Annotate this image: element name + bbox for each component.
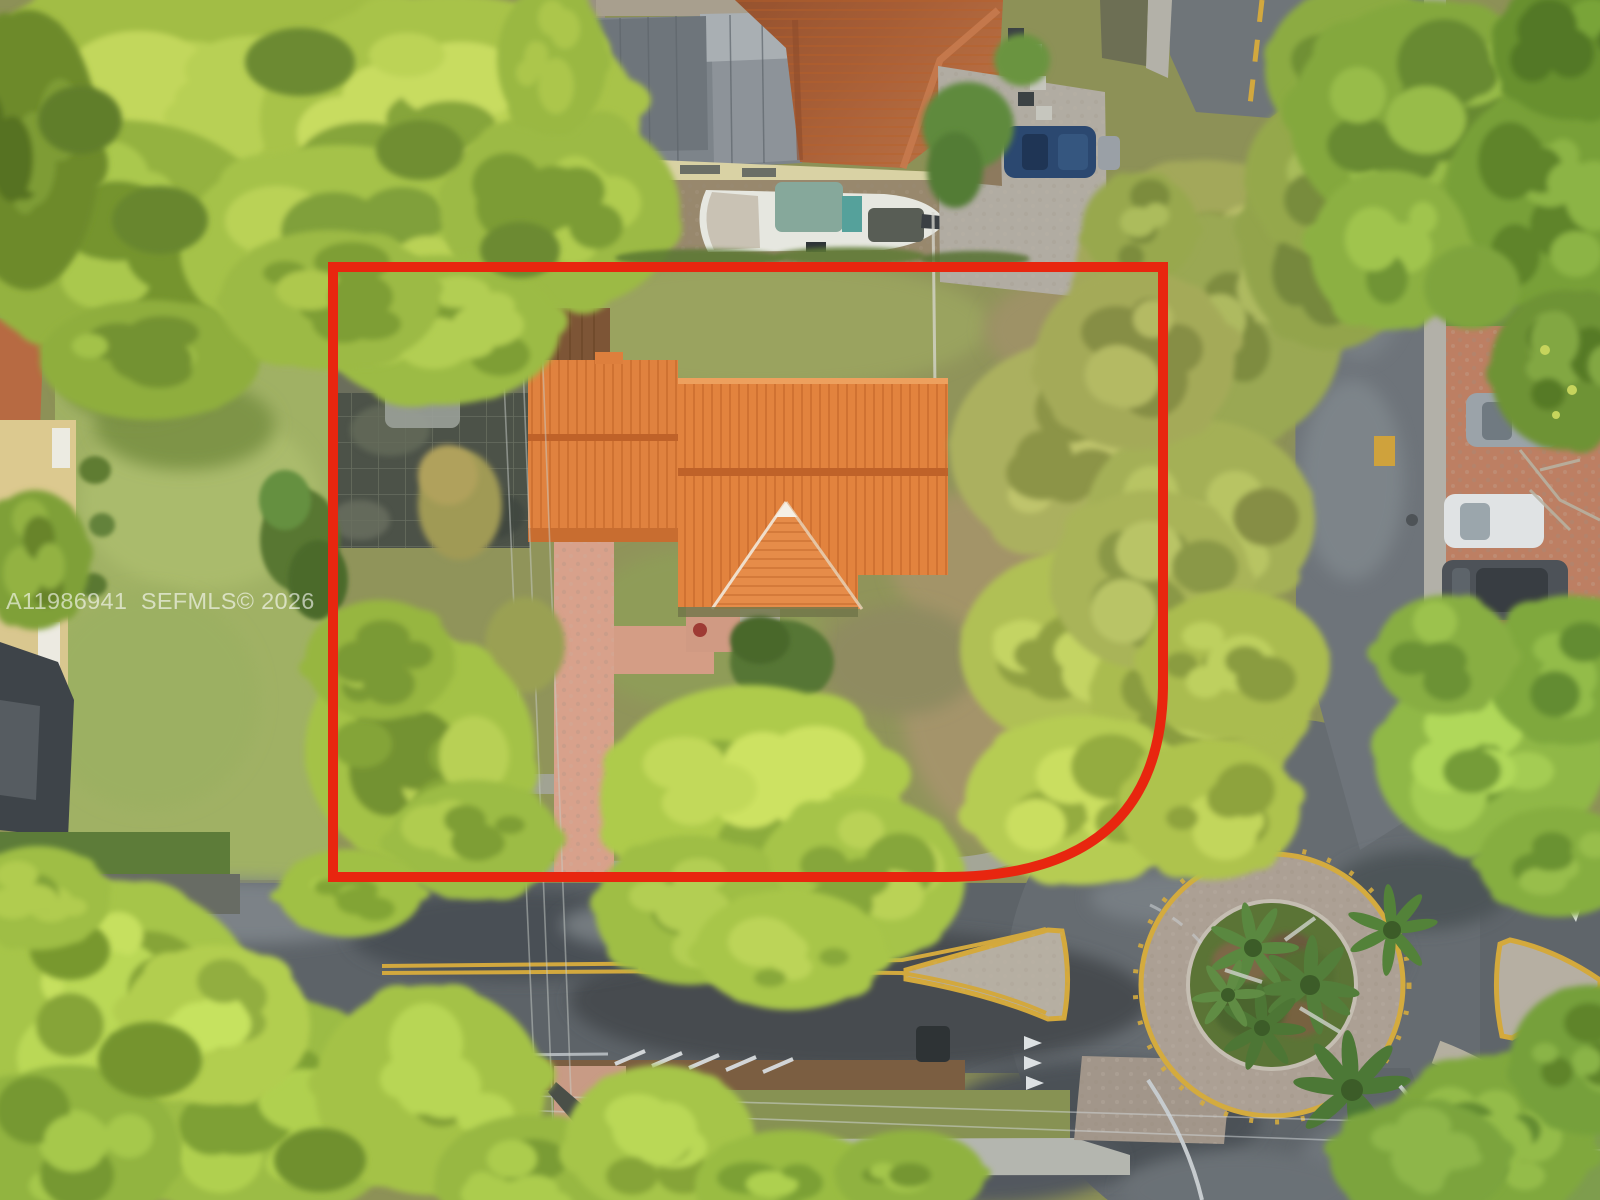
svg-text:A11986941 SEFMLS© 2026: A11986941 SEFMLS© 2026 bbox=[6, 588, 315, 614]
